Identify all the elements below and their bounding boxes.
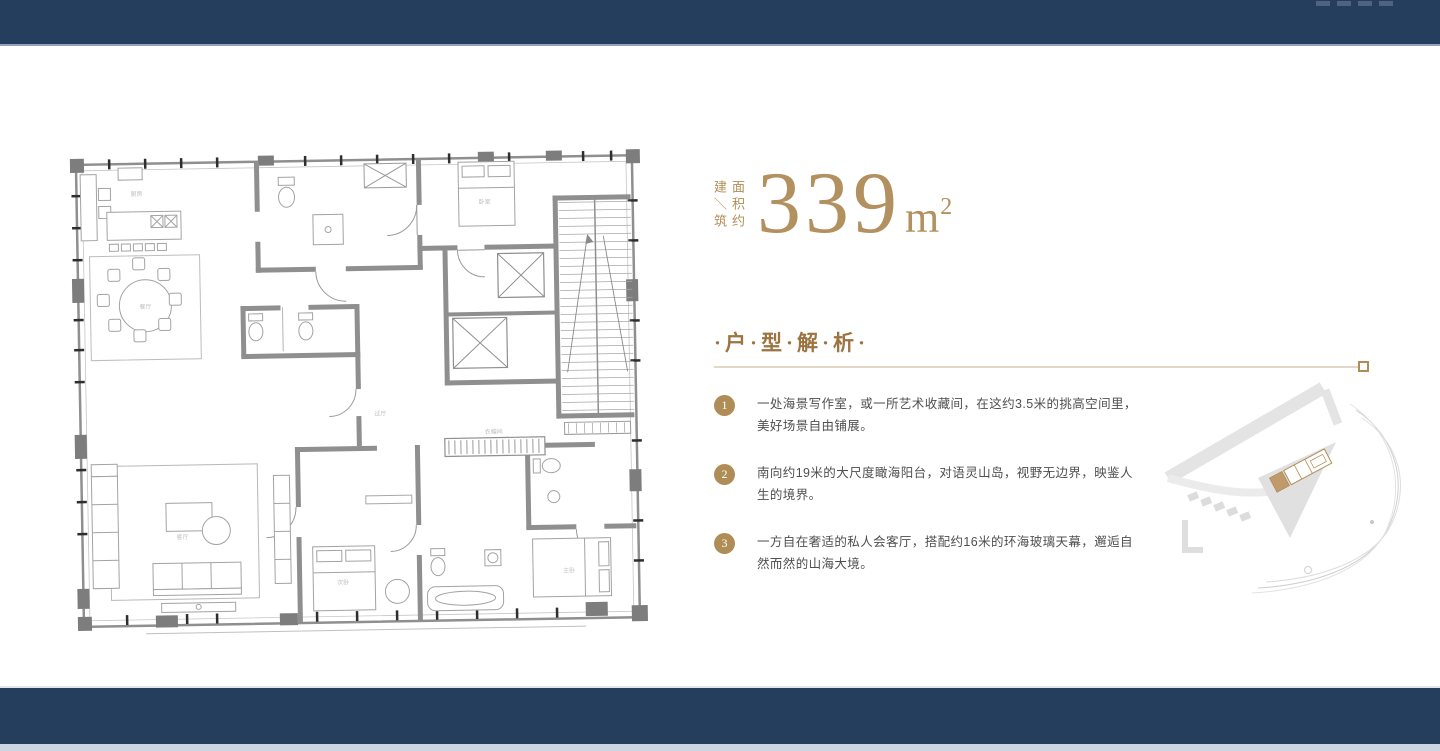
top-navy-bar (0, 0, 1440, 46)
svg-text:衣帽间: 衣帽间 (485, 428, 503, 436)
bullet-text: 南向约19米的大尺度瞰海阳台，对语灵山岛，视野无边界，映鉴人生的境界。 (757, 462, 1137, 506)
duct-box (364, 163, 406, 188)
area-value: 339 (757, 164, 901, 244)
area-label-left: 建＼筑 (712, 180, 727, 231)
balcony-line (146, 626, 586, 634)
bottom-navy-bar (0, 686, 1440, 744)
bullet-number-badge: 1 (714, 395, 735, 416)
staircase (559, 197, 635, 416)
bottom-light-strip (0, 744, 1440, 751)
section-title: ·户·型·解·析· (714, 327, 869, 357)
area-unit: m2 (905, 192, 952, 243)
bullet-text: 一处海景写作室，或一所艺术收藏间，在这约3.5米的挑高空间里，美好场景自由铺展。 (757, 393, 1137, 437)
map-marker-dot (1370, 520, 1374, 524)
svg-text:次卧: 次卧 (337, 578, 349, 586)
analysis-list: 1 一处海景写作室，或一所艺术收藏间，在这约3.5米的挑高空间里，美好场景自由铺… (714, 393, 1144, 575)
bullet-number-badge: 3 (714, 533, 735, 554)
kitchen-furniture (80, 167, 181, 252)
bedroom-middle (313, 545, 410, 611)
map-marker-circle (1305, 567, 1312, 574)
location-key-map (1158, 380, 1440, 600)
bed-top (458, 161, 515, 226)
bathroom-main (427, 548, 504, 611)
partial-logo-mark (1316, 1, 1393, 6)
analysis-item: 2 南向约19米的大尺度瞰海阳台，对语灵山岛，视野无边界，映鉴人生的境界。 (714, 462, 1144, 506)
svg-text:厨房: 厨房 (130, 190, 142, 198)
svg-text:过厅: 过厅 (374, 410, 386, 418)
bathroom-right (533, 459, 561, 503)
area-block: 建＼筑 面积约 339 m2 (712, 164, 952, 244)
slide-canvas: 厨房 餐厅 客厅 主卧 次卧 卧室 过厅 衣帽间 建＼筑 面积约 339 m2 … (0, 0, 1440, 751)
svg-text:主卧: 主卧 (563, 566, 575, 574)
elevator-shafts (452, 253, 546, 369)
analysis-item: 1 一处海景写作室，或一所艺术收藏间，在这约3.5米的挑高空间里，美好场景自由铺… (714, 393, 1144, 437)
bullet-number-badge: 2 (714, 464, 735, 485)
area-label-right: 面积约 (730, 180, 745, 231)
bathroom-top (278, 176, 343, 245)
living-room-furniture (91, 461, 292, 613)
analysis-item: 3 一方自在奢适的私人会客厅，搭配约16米的环海玻璃天幕，邂逅自然而然的山海大境… (714, 531, 1144, 575)
svg-text:餐厅: 餐厅 (139, 303, 151, 311)
bathroom-center-left (248, 307, 313, 352)
bullet-text: 一方自在奢适的私人会客厅，搭配约16米的环海玻璃天幕，邂逅自然而然的山海大境。 (757, 531, 1137, 575)
area-vertical-label: 建＼筑 面积约 (712, 180, 745, 231)
svg-text:客厅: 客厅 (176, 533, 188, 541)
section-divider-line (714, 366, 1360, 368)
floorplan-drawing: 厨房 餐厅 客厅 主卧 次卧 卧室 过厅 衣帽间 (58, 139, 663, 651)
divider-end-square (1358, 361, 1369, 372)
svg-text:卧室: 卧室 (479, 198, 491, 206)
